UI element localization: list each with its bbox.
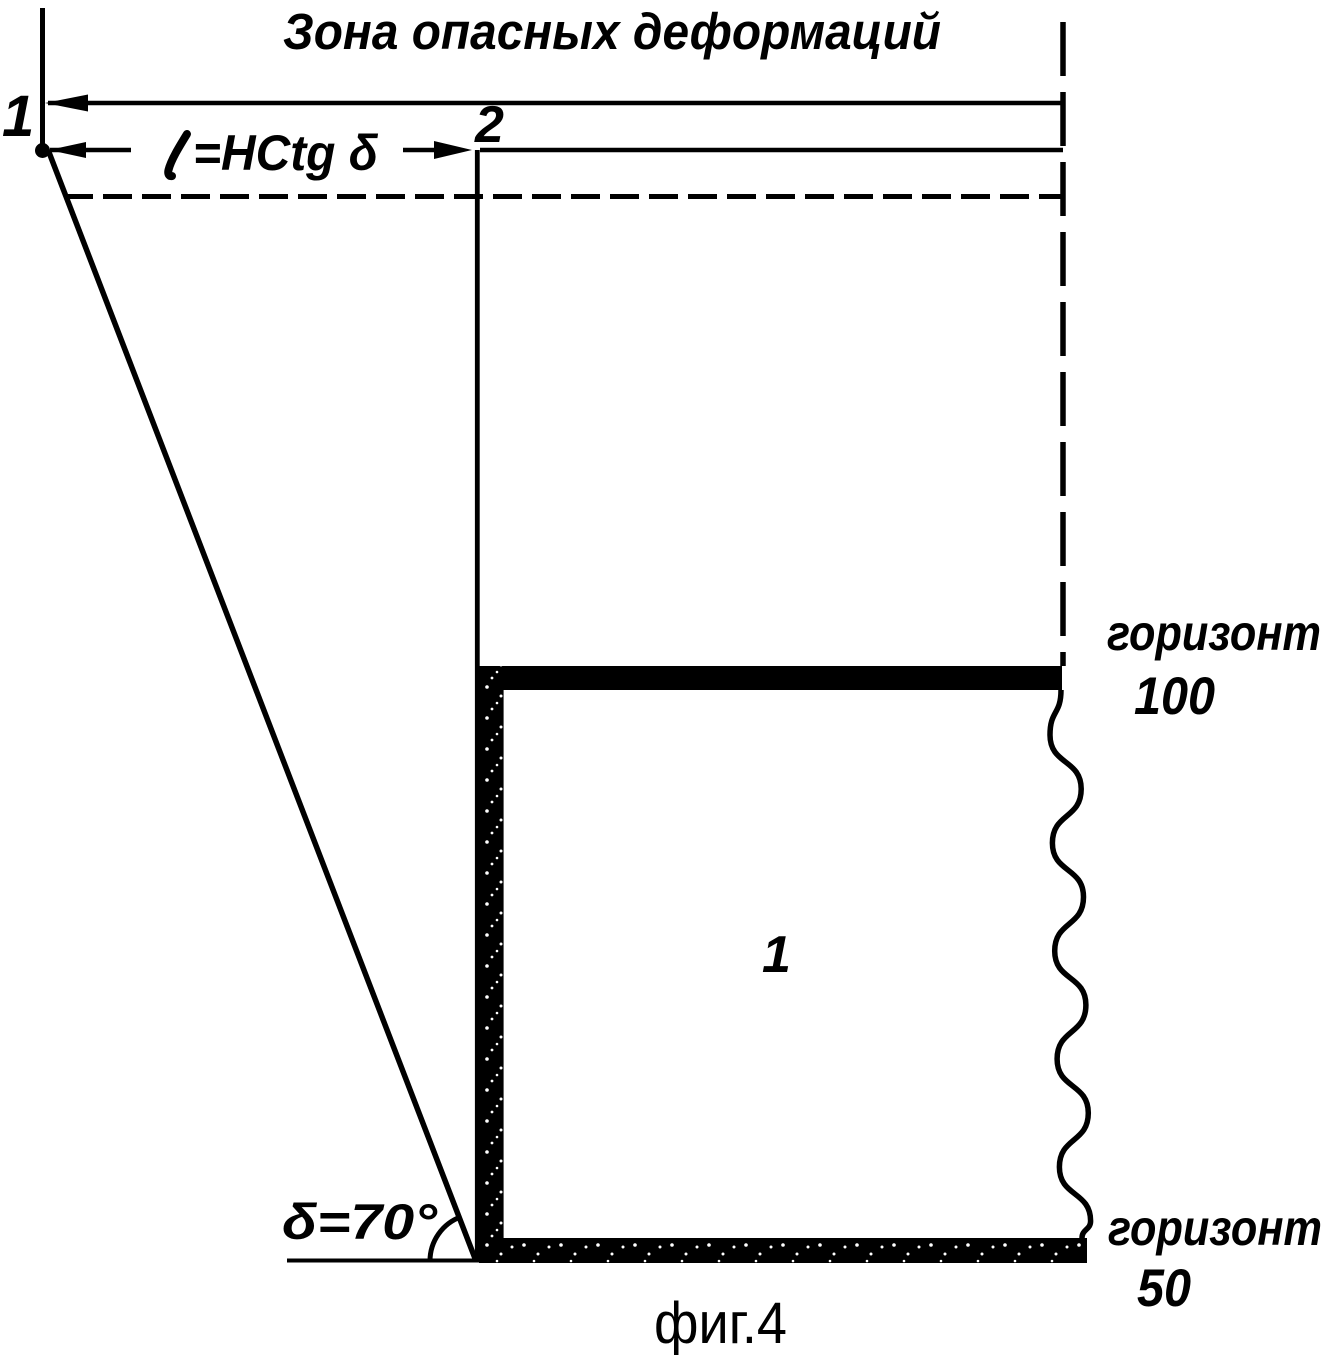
svg-text:фиг.4: фиг.4 bbox=[654, 1291, 787, 1356]
svg-text:1: 1 bbox=[2, 84, 34, 149]
svg-text:горизонт: горизонт bbox=[1108, 1200, 1322, 1256]
svg-text:δ=70°: δ=70° bbox=[282, 1194, 438, 1250]
svg-text:100: 100 bbox=[1134, 667, 1215, 726]
svg-text:50: 50 bbox=[1137, 1259, 1191, 1318]
svg-text:=HCtg δ: =HCtg δ bbox=[193, 125, 378, 181]
svg-text:Зона опасных деформаций: Зона опасных деформаций bbox=[283, 3, 941, 60]
svg-text:горизонт: горизонт bbox=[1107, 605, 1321, 661]
svg-text:1: 1 bbox=[762, 926, 791, 984]
svg-text:2: 2 bbox=[474, 96, 504, 154]
